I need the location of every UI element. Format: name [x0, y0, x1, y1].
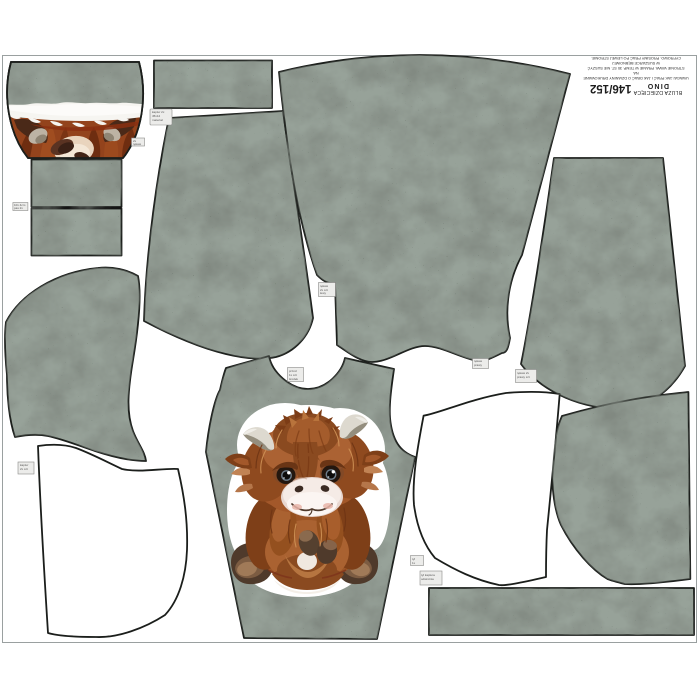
svg-text:pas 2x: pas 2x [14, 206, 23, 210]
svg-text:2x szt: 2x szt [20, 467, 28, 471]
svg-text:odwrotnie: odwrotnie [421, 577, 434, 581]
svg-text:1x: 1x [412, 561, 416, 565]
svg-text:materiał: materiał [152, 118, 163, 122]
svg-text:rękaw: rękaw [133, 142, 142, 146]
svg-text:lewy: lewy [320, 291, 327, 295]
svg-text:prawy: prawy [474, 363, 483, 367]
svg-text:środek: środek [289, 377, 299, 381]
svg-text:prawy szt: prawy szt [517, 375, 530, 379]
